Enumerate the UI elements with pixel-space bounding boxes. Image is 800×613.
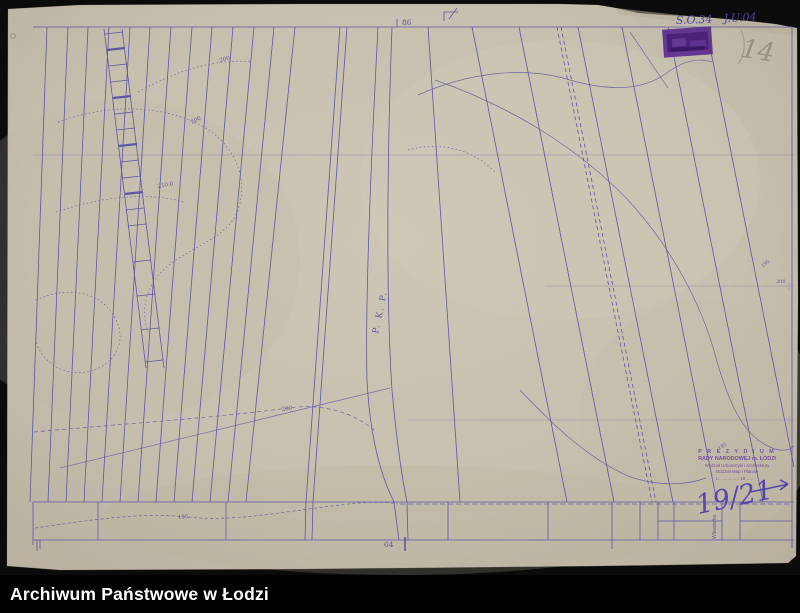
sheet-number-top: 86 bbox=[402, 18, 412, 27]
catalog-code-handwriting: S.O.34 bbox=[676, 13, 713, 27]
postage-stamp bbox=[662, 26, 713, 57]
stamp-line-2: RADY NARODOWEJ m. ŁODZI bbox=[698, 456, 776, 462]
map-scan-svg: 86 64 P. K. P. 200 200 210.0 200 195 195… bbox=[0, 0, 800, 576]
stamp-line-5: L. .............. 19 ..... bbox=[716, 476, 753, 481]
catalog-code2-handwriting: J.U.04 bbox=[721, 10, 756, 25]
stamp-line-3: Wydział Urbanistyki i Architektury bbox=[705, 463, 770, 468]
paper-sheet bbox=[0, 4, 800, 575]
sheet-number-bottom: 64 bbox=[384, 540, 394, 549]
scanned-map-view: 86 64 P. K. P. 200 200 210.0 200 195 195… bbox=[0, 0, 800, 613]
archive-watermark-bar: Archiwum Państwowe w Łodzi bbox=[0, 575, 800, 613]
archive-name-label: Archiwum Państwowe w Łodzi bbox=[0, 584, 269, 605]
stamp-line-1: P R E Z Y D I U M bbox=[698, 449, 775, 455]
contour-label: 195 bbox=[178, 514, 189, 521]
contour-label: 200 bbox=[776, 279, 786, 285]
stamp-line-4: Oddział Map i Planów bbox=[716, 469, 759, 474]
stream-name-label: Wilanówka bbox=[712, 515, 718, 539]
pencil-mark-handwriting: 14 bbox=[739, 34, 776, 69]
